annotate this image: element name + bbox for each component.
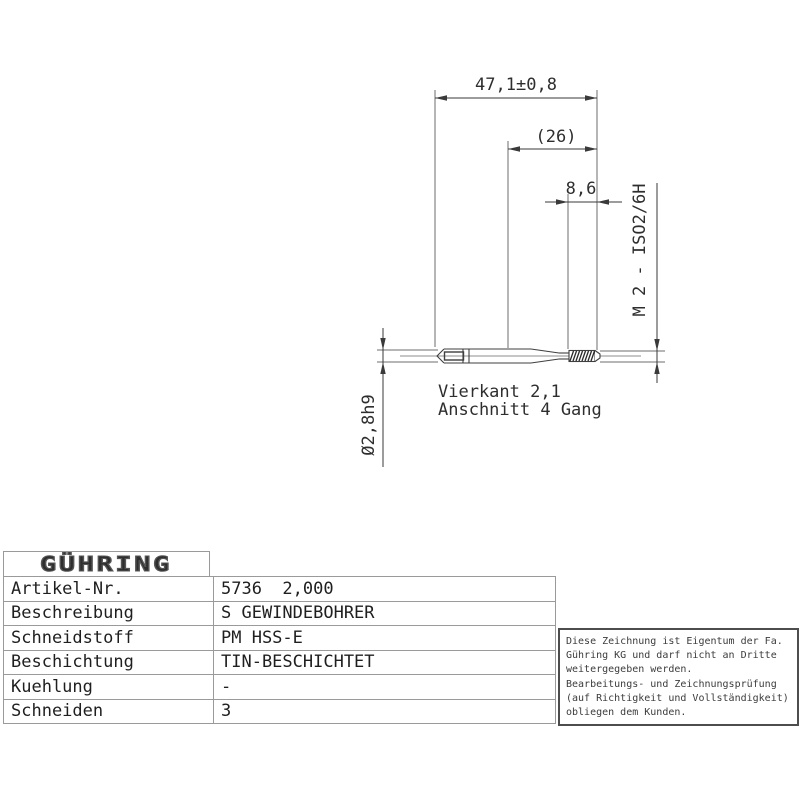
dim-shank-length-label: (26) — [536, 127, 577, 147]
shank-diameter-label: Ø2,8h9 — [359, 394, 379, 455]
row-value: 3 — [214, 701, 231, 721]
table-row: Schneiden 3 — [4, 700, 555, 724]
table-row: Kuehlung - — [4, 675, 555, 700]
guehring-logo: GÜHRING — [5, 552, 208, 576]
disclaimer-line: (auf Richtigkeit und Vollständigkeit) — [566, 692, 795, 706]
row-value: S GEWINDEBOHRER — [214, 603, 375, 623]
disclaimer-line: Diese Zeichnung ist Eigentum der Fa. — [566, 635, 795, 649]
dim-thread-length-label: 8,6 — [566, 179, 597, 199]
row-value: TIN-BESCHICHTET — [214, 652, 375, 672]
spec-table-area: GÜHRING Artikel-Nr. 5736 2,000 Beschreib… — [3, 551, 556, 724]
guehring-logo-text: GÜHRING — [40, 552, 172, 576]
chamfer-note-label: Anschnitt 4 Gang — [438, 400, 602, 420]
thread-tip — [595, 351, 600, 362]
ownership-disclaimer-box: Diese Zeichnung ist Eigentum der Fa. Güh… — [558, 628, 799, 726]
extension-lines — [377, 90, 665, 362]
table-row: Beschreibung S GEWINDEBOHRER — [4, 602, 555, 627]
row-value: PM HSS-E — [214, 628, 303, 648]
row-label: Beschichtung — [4, 651, 214, 675]
row-value: 5736 2,000 — [214, 579, 334, 599]
square-note-label: Vierkant 2,1 — [438, 382, 561, 402]
technical-drawing: 47,1±0,8 (26) 8,6 M 2 - ISO2/6H Ø2,8h9 V… — [0, 0, 800, 548]
row-label: Schneidstoff — [4, 626, 214, 650]
thread-spec-label: M 2 - ISO2/6H — [630, 183, 650, 316]
spec-table: Artikel-Nr. 5736 2,000 Beschreibung S GE… — [3, 576, 556, 724]
table-row: Artikel-Nr. 5736 2,000 — [4, 577, 555, 602]
row-value: - — [214, 677, 231, 697]
row-label: Schneiden — [4, 700, 214, 724]
logo-cell: GÜHRING — [3, 551, 210, 577]
table-row: Beschichtung TIN-BESCHICHTET — [4, 651, 555, 676]
disclaimer-line: Bearbeitungs- und Zeichnungsprüfung — [566, 678, 795, 692]
disclaimer-line: weitergegeben werden. — [566, 663, 795, 677]
drawing-sheet: { "drawing": { "dim_overall_length": "47… — [0, 0, 800, 800]
row-label: Artikel-Nr. — [4, 577, 214, 601]
table-row: Schneidstoff PM HSS-E — [4, 626, 555, 651]
dimension-arrows — [380, 95, 659, 374]
row-label: Kuehlung — [4, 675, 214, 699]
dim-overall-length-label: 47,1±0,8 — [475, 75, 557, 95]
row-label: Beschreibung — [4, 602, 214, 626]
disclaimer-line: Gühring KG und darf nicht an Dritte — [566, 649, 795, 663]
disclaimer-line: obliegen dem Kunden. — [566, 706, 795, 720]
